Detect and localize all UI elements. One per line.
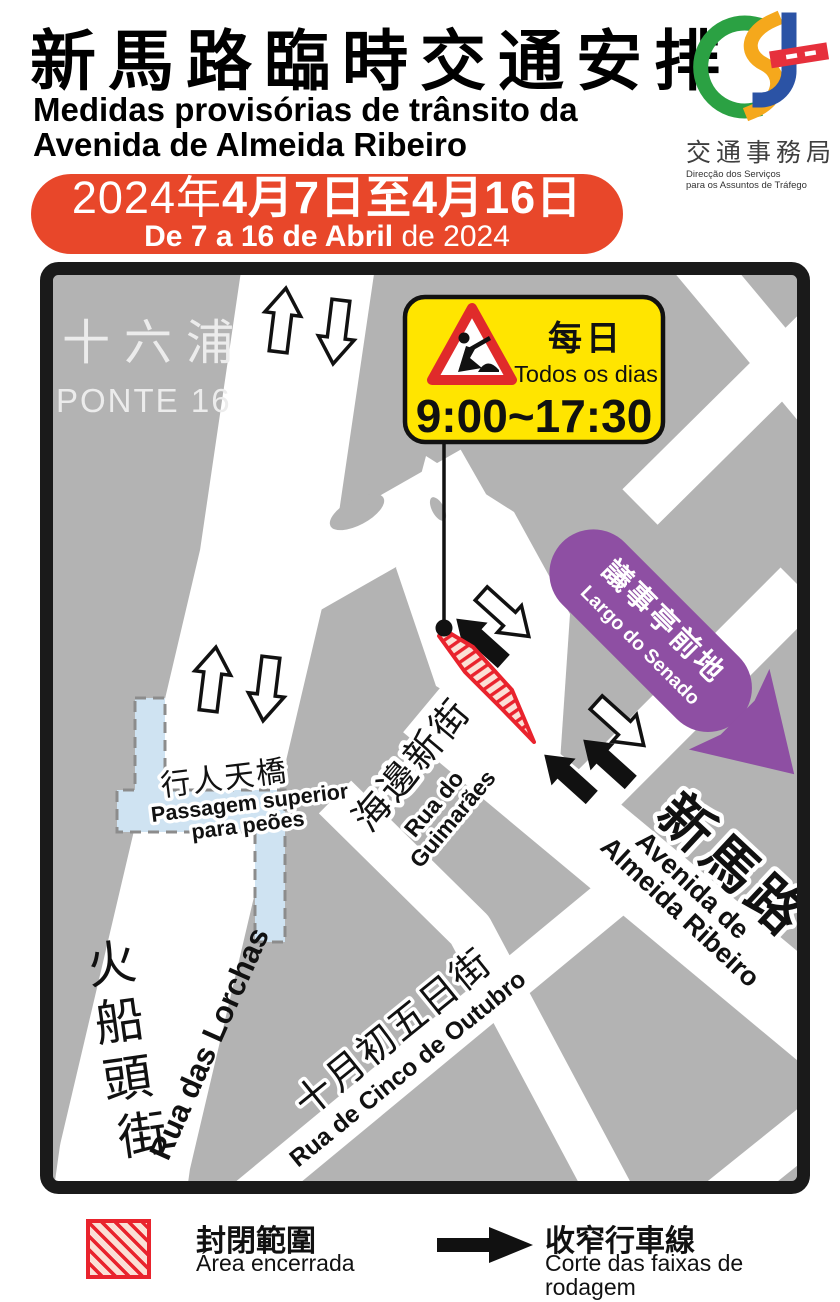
date-banner-zh: 2024年4月7日至4月16日 [31,174,623,221]
callout-hours: 9:00~17:30 [416,390,653,442]
logo-red-road [769,42,829,68]
subtitle-line2: Avenida de Almeida Ribeiro [33,127,578,162]
dsat-logo: 交通事務局 Direcção dos Serviços para os Assu… [686,10,838,191]
subtitle-line1: Medidas provisórias de trânsito da [33,92,578,127]
date-banner: 2024年4月7日至4月16日 De 7 a 16 de Abril de 20… [31,174,623,254]
legend-closed-area-pt: Área encerrada [196,1251,355,1275]
page-title: 新馬路臨時交通安排 [30,8,732,104]
date-banner-pt: De 7 a 16 de Abril de 2024 [31,221,623,252]
street-map: 十六浦 PONTE 16 行人天橋 Passagem superior para… [40,262,810,1194]
logo-agency-name: 交通事務局 [686,133,838,169]
legend-closed-area-swatch [86,1219,151,1279]
callout-anchor-dot [436,620,453,637]
legend-lane-arrow-icon [437,1227,533,1263]
traffic-notice-poster: 新馬路臨時交通安排 Medidas provisórias de trânsit… [0,0,840,1302]
logo-agency-name-pt: Direcção dos Serviços para os Assuntos d… [686,169,838,191]
label-ponte16-zh: 十六浦 [62,317,248,370]
page-subtitle: Medidas provisórias de trânsito da Aveni… [33,92,578,162]
daily-hours-callout: 每日 Todos os dias 9:00~17:30 [405,297,663,442]
callout-daily-pt: Todos os dias [514,361,658,387]
legend-narrowed-lanes-pt: Corte das faixas de rodagem [545,1251,743,1299]
label-ponte16-pt: PONTE 16 [56,382,232,419]
callout-daily-zh: 每日 [548,320,624,358]
dsat-logo-mark [686,10,838,128]
